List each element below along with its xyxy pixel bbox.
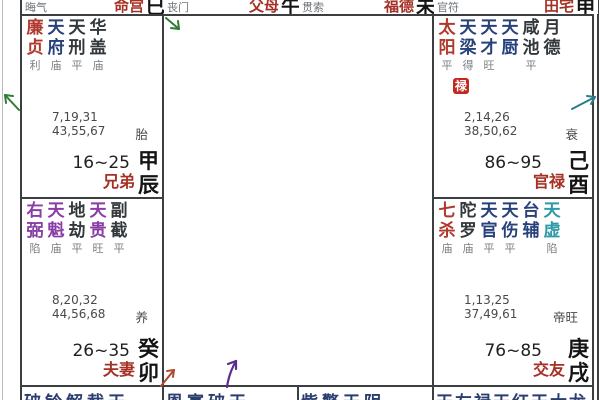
star-name: 陀罗 [458, 201, 478, 241]
star-name: 天府 [46, 18, 66, 58]
palace-name: 福德 [384, 0, 414, 14]
star-brightness: 庙 [46, 242, 66, 255]
palace-name: 命宫 [114, 0, 144, 14]
ages-line: 8,20,32 [52, 293, 105, 307]
palace-cell-fude-wei[interactable]: 贯索 福德 未 [299, 0, 438, 14]
heavenly-stem: 甲 [138, 150, 159, 172]
star-name: 七杀 [437, 201, 457, 241]
star-column: 七杀 庙 [437, 201, 457, 255]
star-column: 廉贞 利 [25, 18, 45, 72]
palace-cell-partial-yin[interactable]: 破铃解截天 [24, 388, 160, 400]
star-name: 天才 [479, 18, 499, 58]
earthly-branch: 午 [281, 0, 300, 14]
palace-cell-partial-2[interactable]: 紫擎天阴 [301, 388, 430, 400]
star-brightness [500, 59, 520, 72]
stars-row: 右弼 陷 天魁 庙 地劫 平 天贵 旺 副截 平 [25, 201, 129, 255]
grid-line [20, 385, 594, 387]
life-stage: 养 [135, 307, 148, 326]
star-column: 台辅 [521, 201, 541, 255]
star-name: 华盖 [88, 18, 108, 58]
stars-row: 廉贞 利 天府 庙 天刑 平 华盖 庙 [25, 18, 108, 72]
earthly-branch: 卯 [138, 362, 159, 384]
star-column: 天虚 陷 [542, 201, 562, 255]
palace-fuqi[interactable]: 右弼 陷 天魁 庙 地劫 平 天贵 旺 副截 平 8,20,32 44,56,6… [22, 199, 162, 385]
palace-cell-tianzhai-shen[interactable]: 官符 田宅 申 [434, 0, 598, 14]
star-column: 天梁 得 [458, 18, 478, 72]
star-brightness: 平 [500, 242, 520, 255]
star-name: 副截 [109, 201, 129, 241]
ages-line: 44,56,68 [52, 307, 105, 321]
ages-line: 1,13,25 [464, 293, 517, 307]
earthly-branch: 酉 [568, 174, 589, 196]
year-god-label: 晦气 [25, 1, 47, 14]
star-brightness [521, 242, 541, 255]
star-brightness [542, 59, 562, 72]
arrow-down-right-icon [164, 16, 184, 34]
palace-xiongdi[interactable]: 廉贞 利 天府 庙 天刑 平 华盖 庙 7,19,31 43,55,67 胎 1… [22, 16, 162, 197]
palace-name: 官禄 [533, 168, 565, 192]
palace-name: 田宅 [544, 0, 574, 14]
star-column: 天府 庙 [46, 18, 66, 72]
earthly-branch: 辰 [138, 174, 159, 196]
palace-name: 夫妻 [103, 356, 135, 380]
star-column: 右弼 陷 [25, 201, 45, 255]
arrow-purple-up-icon [219, 357, 245, 389]
star-column: 天魁 庙 [46, 201, 66, 255]
star-name: 月德 [542, 18, 562, 58]
year-god-label: 丧门 [167, 1, 189, 14]
star-brightness: 旺 [88, 242, 108, 255]
life-stage: 衰 [565, 124, 578, 143]
earthly-branch: 申 [576, 0, 595, 14]
star-brightness: 陷 [25, 242, 45, 255]
life-stage: 帝旺 [553, 307, 578, 326]
star-column: 天伤 平 [500, 201, 520, 255]
palace-name: 兄弟 [103, 168, 135, 192]
arrow-upper-left-icon [1, 88, 21, 112]
star-name: 廉贞 [25, 18, 45, 58]
earthly-branch: 未 [416, 0, 435, 14]
palace-cell-ming-si[interactable]: 晦气 命宫 巳 [22, 0, 168, 14]
star-brightness: 陷 [542, 242, 562, 255]
star-brightness: 庙 [88, 59, 108, 72]
heavenly-stem: 庚 [568, 338, 589, 360]
star-name: 右弼 [25, 201, 45, 241]
heavenly-stem: 己 [568, 150, 589, 172]
annual-ages: 2,14,26 38,50,62 [464, 110, 517, 138]
star-name: 天刑 [67, 18, 87, 58]
star-column: 天刑 平 [67, 18, 87, 72]
life-stage: 胎 [135, 124, 148, 143]
star-column: 月德 [542, 18, 562, 72]
star-brightness: 平 [67, 59, 87, 72]
star-column: 天厨 [500, 18, 520, 72]
star-brightness: 平 [67, 242, 87, 255]
year-god-label: 贯索 [302, 1, 324, 14]
star-name: 台辅 [521, 201, 541, 241]
star-brightness: 平 [521, 59, 541, 72]
palace-guanlu[interactable]: 太阳 平 天梁 得 天才 旺 天厨 咸池 平 月德 禄 2,14,26 38,5… [434, 16, 592, 197]
window-left-edge [2, 0, 3, 400]
palace-cell-fumu-wu[interactable]: 丧门 父母 午 [164, 0, 303, 14]
star-name: 天官 [479, 201, 499, 241]
palace-cell-partial-hai[interactable]: 天左禄天红天大龙 [436, 388, 596, 400]
star-name: 咸池 [521, 18, 541, 58]
star-column: 天官 平 [479, 201, 499, 255]
arrow-up-right-icon [570, 92, 598, 112]
hua-lu-badge: 禄 [453, 78, 469, 94]
ages-line: 2,14,26 [464, 110, 517, 124]
star-brightness: 庙 [46, 59, 66, 72]
star-brightness: 平 [437, 59, 457, 72]
annual-ages: 7,19,31 43,55,67 [52, 110, 105, 138]
grid-line [297, 386, 299, 400]
year-god-label: 官符 [437, 1, 459, 14]
palace-jiaoyou[interactable]: 七杀 庙 陀罗 庙 天官 平 天伤 平 台辅 天虚 陷 1,13,25 37,4… [434, 199, 592, 385]
star-column: 天贵 旺 [88, 201, 108, 255]
star-column: 天才 旺 [479, 18, 499, 72]
star-brightness: 旺 [479, 59, 499, 72]
stars-row: 七杀 庙 陀罗 庙 天官 平 天伤 平 台辅 天虚 陷 [437, 201, 562, 255]
star-brightness: 得 [458, 59, 478, 72]
ages-line: 37,49,61 [464, 307, 517, 321]
ages-line: 38,50,62 [464, 124, 517, 138]
star-name: 太阳 [437, 18, 457, 58]
ziwei-chart-screen: { "colors": { "red": "#b0392e", "navy": … [0, 0, 600, 400]
earthly-branch: 戌 [568, 362, 589, 384]
star-brightness: 庙 [437, 242, 457, 255]
grid-line [162, 0, 164, 400]
star-column: 华盖 庙 [88, 18, 108, 72]
star-column: 副截 平 [109, 201, 129, 255]
star-name: 天伤 [500, 201, 520, 241]
star-name: 地劫 [67, 201, 87, 241]
star-name: 天厨 [500, 18, 520, 58]
earthly-branch: 巳 [146, 0, 165, 14]
star-name: 天虚 [542, 201, 562, 241]
star-name: 天贵 [88, 201, 108, 241]
star-name: 天魁 [46, 201, 66, 241]
star-brightness: 平 [109, 242, 129, 255]
star-column: 陀罗 庙 [458, 201, 478, 255]
star-column: 咸池 平 [521, 18, 541, 72]
window-right-edge [597, 0, 599, 400]
palace-name: 交友 [533, 356, 565, 380]
ages-line: 7,19,31 [52, 110, 105, 124]
ages-line: 43,55,67 [52, 124, 105, 138]
star-name: 天梁 [458, 18, 478, 58]
star-brightness: 平 [479, 242, 499, 255]
star-brightness: 利 [25, 59, 45, 72]
palace-name: 父母 [249, 0, 279, 14]
grid-line [592, 0, 594, 400]
arrow-red-up-right-icon [159, 366, 179, 388]
annual-ages: 8,20,32 44,56,68 [52, 293, 105, 321]
heavenly-stem: 癸 [138, 338, 159, 360]
palace-cell-partial-1[interactable]: 恩寡破天 [166, 388, 296, 400]
star-brightness: 庙 [458, 242, 478, 255]
annual-ages: 1,13,25 37,49,61 [464, 293, 517, 321]
star-column: 地劫 平 [67, 201, 87, 255]
star-column: 太阳 平 [437, 18, 457, 72]
stars-row: 太阳 平 天梁 得 天才 旺 天厨 咸池 平 月德 [437, 18, 562, 72]
